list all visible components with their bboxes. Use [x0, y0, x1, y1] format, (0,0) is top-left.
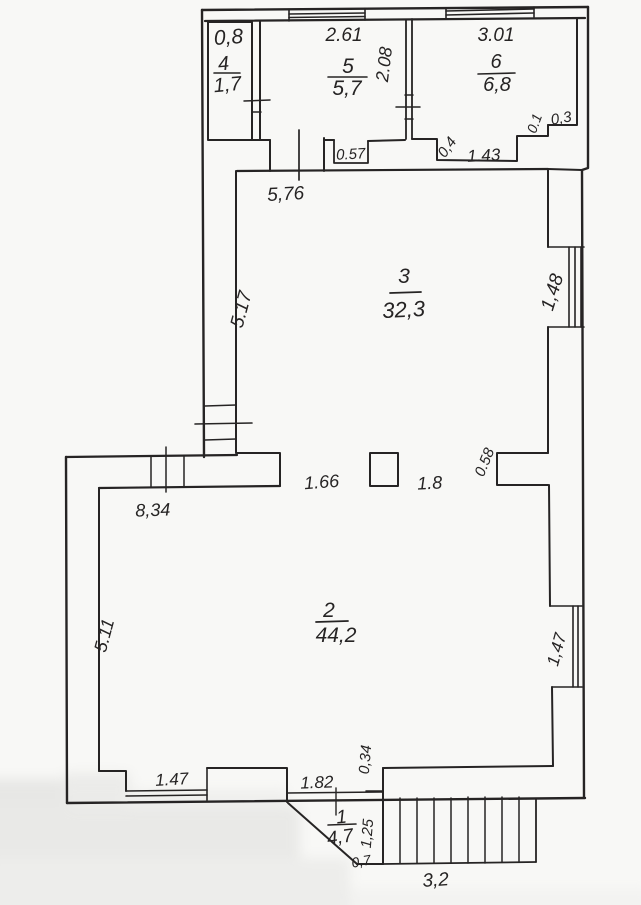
svg-text:5,76: 5,76 — [267, 183, 305, 206]
svg-text:0,8: 0,8 — [213, 25, 244, 50]
svg-text:32,3: 32,3 — [382, 296, 427, 323]
svg-text:1.82: 1.82 — [300, 772, 334, 792]
svg-text:5: 5 — [342, 55, 354, 78]
svg-text:1.43: 1.43 — [467, 145, 502, 166]
svg-text:0.57: 0.57 — [336, 145, 367, 164]
svg-text:3,2: 3,2 — [422, 869, 450, 892]
svg-text:0,34: 0,34 — [356, 744, 375, 775]
svg-text:8,34: 8,34 — [135, 499, 171, 520]
svg-text:1.66: 1.66 — [303, 471, 340, 493]
svg-text:6,8: 6,8 — [483, 74, 511, 96]
svg-text:2: 2 — [322, 599, 335, 622]
svg-text:1,7: 1,7 — [213, 73, 243, 97]
svg-text:44,2: 44,2 — [316, 624, 357, 647]
svg-text:1: 1 — [335, 807, 347, 829]
svg-text:3.01: 3.01 — [478, 25, 515, 46]
svg-text:2.61: 2.61 — [325, 25, 363, 46]
svg-text:1,25: 1,25 — [358, 818, 378, 849]
svg-text:3: 3 — [398, 265, 410, 288]
svg-text:6: 6 — [490, 51, 502, 73]
svg-text:1.47: 1.47 — [155, 769, 190, 790]
svg-text:5,7: 5,7 — [332, 77, 363, 100]
svg-text:4,7: 4,7 — [326, 825, 356, 850]
svg-text:4: 4 — [217, 53, 230, 76]
svg-text:1.8: 1.8 — [417, 472, 443, 493]
